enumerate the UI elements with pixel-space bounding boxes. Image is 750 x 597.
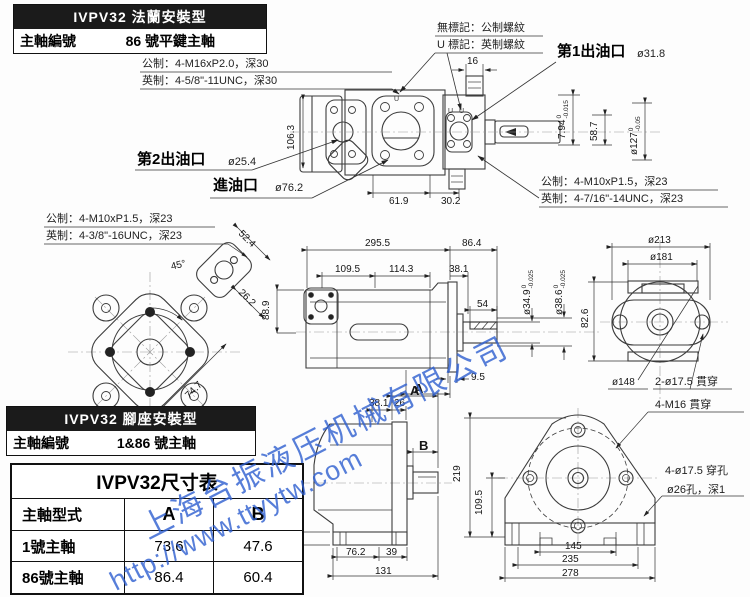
table-row: 86號主軸 86.4 60.4 — [12, 562, 302, 593]
label-b-foot: B — [419, 439, 428, 452]
dim-38-1-foot: 38.1 — [369, 399, 388, 409]
label-26-hole: ø26孔，深1 — [667, 485, 725, 496]
dim-114-3: 114.3 — [389, 265, 413, 275]
note-metric-m10-left: 公制：4-M10xP1.5，深23 — [46, 214, 173, 225]
row1-b-value: 47.6 — [214, 531, 302, 562]
foot-shaft-label: 主軸編號 — [13, 433, 117, 453]
dim-34-9: ø34.90-0.025 — [521, 270, 535, 315]
dim-76-2: 76.2 — [346, 548, 365, 558]
dim-278: 278 — [562, 569, 579, 579]
flange-type-header: IVPV32 法蘭安裝型 主軸編號 86 號平鍵主軸 — [13, 4, 267, 54]
outlet1-size: ø31.8 — [637, 49, 665, 60]
row1-a-value: 73.6 — [125, 531, 214, 562]
u-thread-mark: U — [459, 108, 464, 115]
dim-109-5-foot: 109.5 — [475, 490, 485, 515]
row2-a-value: 86.4 — [125, 562, 214, 593]
size-table-header-row: 主軸型式 A B — [12, 499, 302, 531]
dim-54: 54 — [477, 300, 488, 310]
dim-16: 16 — [467, 57, 478, 67]
dim-181: ø181 — [650, 253, 673, 263]
table-row: 1號主軸 73.6 47.6 — [12, 531, 302, 563]
col-header-shaft-type: 主軸型式 — [12, 499, 125, 530]
drawing-sheet: IVPV32 法蘭安裝型 主軸編號 86 號平鍵主軸 IVPV32 腳座安裝型 … — [0, 0, 750, 594]
foot-type-header: IVPV32 腳座安裝型 主軸編號 1&86 號主軸 — [6, 406, 256, 456]
dim-82-6: 82.6 — [581, 309, 591, 328]
col-header-b: B — [214, 499, 302, 530]
note-no-mark: 無標記：公制螺紋 — [437, 23, 525, 34]
dim-145: 145 — [565, 542, 582, 552]
size-table: IVPV32尺寸表 主軸型式 A B 1號主軸 73.6 47.6 86號主軸 … — [10, 463, 304, 595]
inlet-size: ø76.2 — [275, 183, 303, 194]
note-u-mark: U 標記：英制螺紋 — [437, 40, 525, 51]
dim-61-9: 61.9 — [389, 197, 408, 207]
dim-39: 39 — [386, 548, 397, 558]
flange-shaft-value: 86 號平鍵主軸 — [126, 31, 215, 51]
size-table-title: IVPV32尺寸表 — [12, 465, 302, 499]
dim-9-5: 9.5 — [471, 373, 485, 383]
note-inch-m10-left: 英制：4-3/8"-16UNC，深23 — [46, 231, 182, 242]
inlet-label: 進油口 — [213, 178, 258, 193]
dim-148: ø148 — [612, 378, 635, 388]
flange-shaft-label: 主軸編號 — [20, 31, 126, 51]
dim-235: 235 — [562, 555, 579, 565]
dim-106-3: 106.3 — [287, 125, 297, 150]
dim-127: ø1270-0.05 — [628, 116, 642, 155]
outlet2-label: 第2出油口 — [137, 152, 205, 167]
dim-58-7: 58.7 — [590, 122, 600, 141]
dim-219: 219 — [453, 465, 463, 482]
dim-86-4: 86.4 — [462, 239, 481, 249]
label-4-17-5: 4-ø17.5 穿孔 — [665, 466, 728, 477]
dim-26-foot: 26 — [394, 399, 405, 409]
u-thread-mark: U — [448, 108, 453, 115]
flange-type-title: IVPV32 法蘭安裝型 — [14, 5, 266, 29]
label-4-m16: 4-M16 貫穿 — [655, 400, 711, 411]
col-header-a: A — [125, 499, 214, 530]
note-metric-m16: 公制：4-M16xP2.0，深30 — [142, 59, 269, 70]
dim-7-94: 7.940-0.015 — [556, 100, 570, 139]
dim-109-5: 109.5 — [335, 265, 360, 275]
dim-88-9: 88.9 — [262, 301, 272, 320]
note-inch-m16: 英制：4-5/8"-11UNC，深30 — [142, 76, 277, 87]
label-a-foot: A — [410, 384, 419, 397]
dim-213: ø213 — [648, 236, 671, 246]
outlet1-label: 第1出油口 — [557, 44, 625, 59]
foot-shaft-value: 1&86 號主軸 — [117, 433, 196, 453]
note-inch-m10-right: 英制：4-7/16"-14UNC，深23 — [541, 194, 683, 205]
row2-b-value: 60.4 — [214, 562, 302, 593]
foot-type-title: IVPV32 腳座安裝型 — [7, 407, 255, 431]
outlet2-size: ø25.4 — [228, 157, 256, 168]
note-metric-m10-right: 公制：4-M10xP1.5，深23 — [541, 177, 668, 188]
dim-38-6: ø38.60-0.025 — [553, 270, 567, 315]
dim-30-2: 30.2 — [441, 197, 460, 207]
u-thread-mark: U — [394, 96, 399, 103]
dim-295-5: 295.5 — [365, 239, 390, 249]
dim-2-17-5: 2-ø17.5 貫穿 — [655, 377, 718, 388]
dim-131: 131 — [375, 567, 392, 577]
dim-38-1: 38.1 — [449, 265, 468, 275]
row1-shaft-type: 1號主軸 — [12, 531, 125, 562]
row2-shaft-type: 86號主軸 — [12, 562, 125, 593]
